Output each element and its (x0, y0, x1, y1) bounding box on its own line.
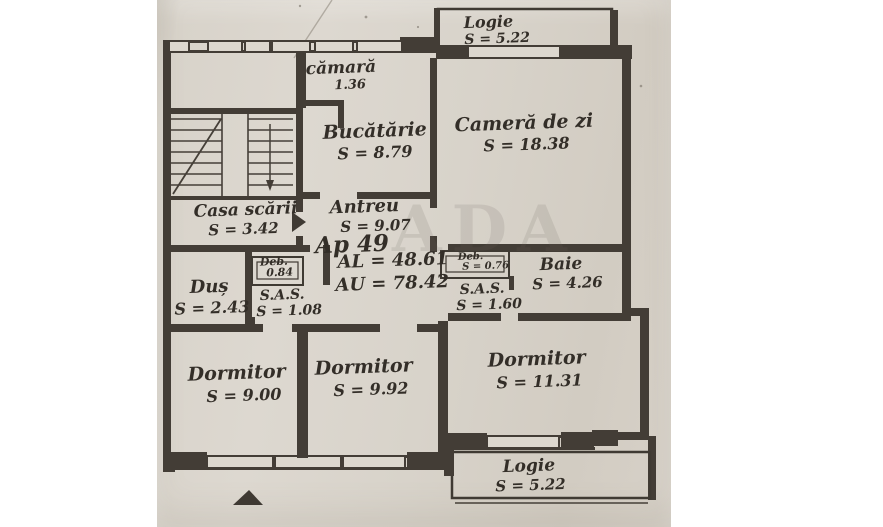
room-area: S = 8.79 (337, 143, 428, 162)
label-dus: Duș S = 2.43 (189, 277, 249, 317)
label-sas-1: S.A.S. S = 1.08 (259, 287, 322, 319)
staircase (167, 108, 296, 200)
room-area: S = 5.22 (464, 31, 530, 47)
label-dormitor-3: Dormitor S = 11.31 (487, 348, 586, 391)
label-total-areas: AL = 48.61 AU = 78.42 (337, 250, 449, 295)
room-area: S = 9.00 (206, 386, 286, 405)
label-bucatarie: Bucătărie S = 8.79 (322, 120, 427, 163)
usable-area: AU = 78.42 (335, 273, 449, 295)
label-debara-2: Deb. S = 0.76 (458, 251, 510, 273)
room-name: Dormitor (187, 362, 286, 384)
room-name: Logie (463, 13, 529, 31)
room-area: S = 11.31 (496, 372, 586, 391)
built-area: AL = 48.61 (337, 250, 448, 272)
label-camera-de-zi: Cameră de zi S = 18.38 (454, 112, 594, 156)
room-area: S = 4.26 (532, 275, 603, 292)
room-name: Casa scării (193, 200, 297, 221)
label-casa-scarii: Casa scării S = 3.42 (193, 200, 298, 239)
label-camara: cămară 1.36 (305, 59, 376, 93)
room-area: S = 1.60 (456, 297, 522, 313)
room-name: S.A.S. (459, 281, 521, 297)
room-name: Dormitor (487, 348, 586, 370)
label-sas-2: S.A.S. S = 1.60 (459, 281, 522, 313)
room-area: S = 1.08 (256, 303, 322, 319)
label-dormitor-1: Dormitor S = 9.00 (187, 362, 286, 405)
room-name: Duș (189, 277, 249, 297)
room-area: 0.84 (266, 266, 293, 278)
label-debara-1: Deb. 0.84 (260, 255, 294, 278)
room-name: S.A.S. (259, 287, 321, 303)
room-name: Logie (502, 457, 565, 476)
label-logie-top: Logie S = 5.22 (463, 13, 530, 47)
north-arrow (233, 490, 263, 505)
room-area: S = 2.43 (174, 299, 250, 318)
label-baie: Baie S = 4.26 (539, 255, 603, 292)
room-name: Antreu (329, 197, 410, 218)
room-name: Bucătărie (322, 120, 427, 143)
room-area: S = 9.92 (333, 380, 413, 399)
room-name: Dormitor (314, 356, 413, 378)
room-area: S = 3.42 (208, 220, 298, 238)
room-name: cămară (305, 59, 376, 78)
label-dormitor-2: Dormitor S = 9.92 (314, 356, 413, 399)
room-name: Cameră de zi (454, 112, 593, 136)
room-area: 1.36 (334, 78, 377, 92)
scanned-floor-plan-photo: ADA Logie S = 5.22 cămară 1.36 Bucătărie… (0, 0, 883, 527)
label-logie-bottom: Logie S = 5.22 (502, 457, 566, 494)
room-name: Baie (539, 255, 602, 274)
room-area: S = 0.76 (462, 261, 509, 273)
room-area: S = 5.22 (495, 477, 566, 494)
